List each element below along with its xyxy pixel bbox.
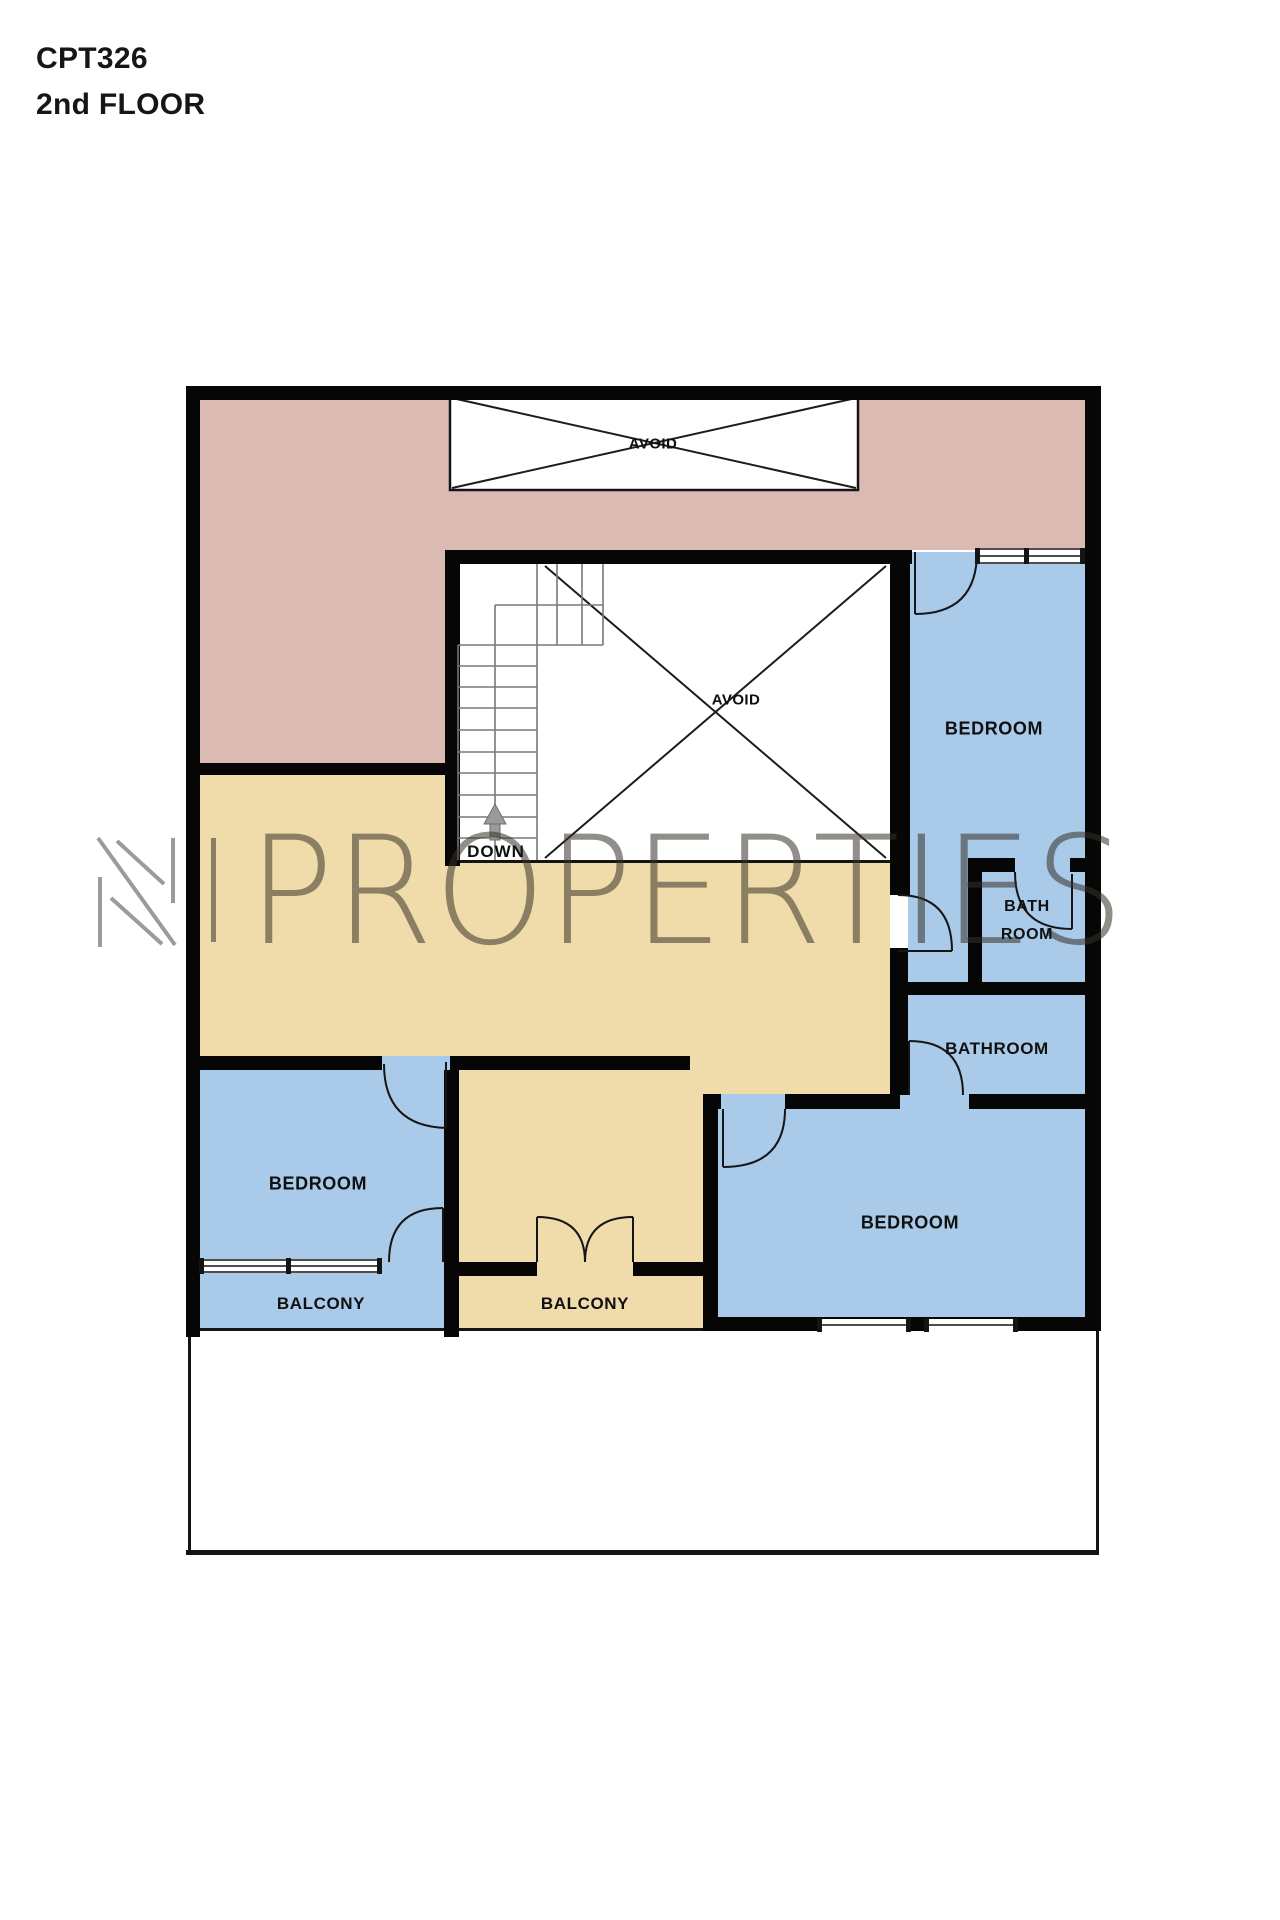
label-bedroom-bottom: BEDROOM bbox=[861, 1213, 959, 1234]
label-avoid-stairwell: AVOID bbox=[712, 692, 760, 709]
label-avoid-top: AVOID bbox=[629, 436, 677, 453]
watermark: PROPERTIES bbox=[0, 0, 1280, 1920]
watermark-text: PROPERTIES bbox=[248, 805, 1125, 979]
label-bedroom-left: BEDROOM bbox=[269, 1174, 367, 1195]
watermark-separator bbox=[211, 838, 216, 942]
label-bath-room: BATH ROOM bbox=[1001, 893, 1053, 949]
floor-plan-page: CPT326 2nd FLOOR bbox=[0, 0, 1280, 1920]
watermark-logo-n-icon bbox=[98, 838, 175, 947]
label-down: DOWN bbox=[467, 842, 525, 862]
label-bathroom: BATHROOM bbox=[945, 1039, 1049, 1059]
label-bedroom-right: BEDROOM bbox=[945, 719, 1043, 740]
label-balcony-middle: BALCONY bbox=[541, 1294, 629, 1314]
label-balcony-left: BALCONY bbox=[277, 1294, 365, 1314]
